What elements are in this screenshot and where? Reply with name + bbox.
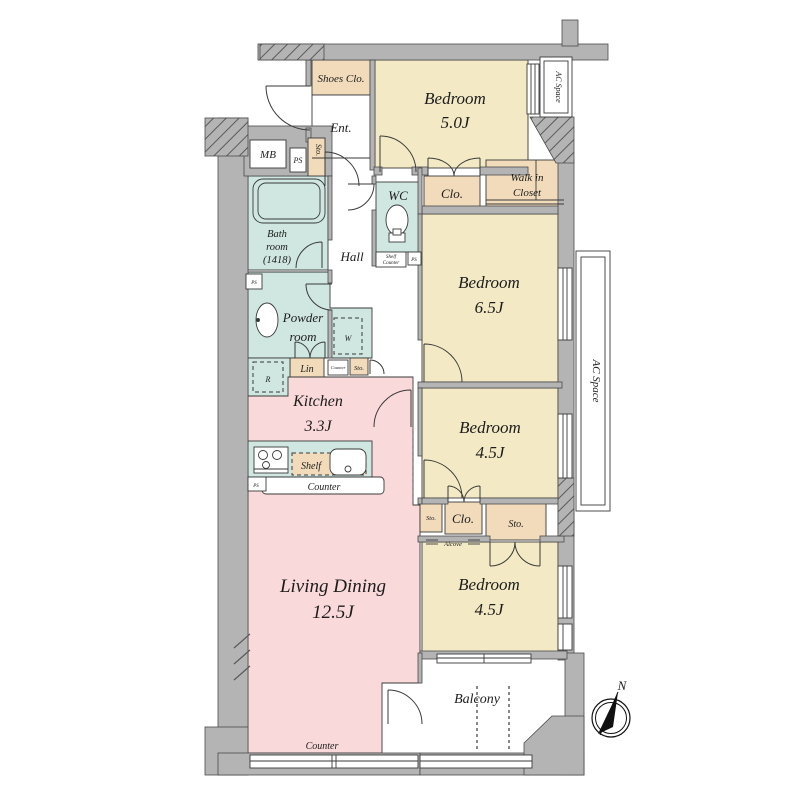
wall-seg: [418, 653, 422, 683]
wall-top-stub: [562, 20, 578, 46]
label-bedroom-65: Bedroom: [458, 273, 520, 292]
label-ac-space-top: AC Space: [554, 70, 563, 103]
label-ps-1: PS: [293, 156, 303, 165]
wall-seg: [418, 498, 422, 504]
label-counter-bottom: Counter: [306, 741, 339, 752]
floor-plan-page: N Shoes Clo. Ent. Bedroom 5.0J AC Space …: [0, 0, 800, 800]
window-living-bottom: [250, 755, 418, 768]
window-bedroom-bottom-b: [558, 624, 572, 650]
label-counter-tiny: Counter: [331, 365, 346, 370]
label-walk-in-1: Walk in: [511, 172, 544, 184]
label-storage-powder: Sto.: [354, 365, 364, 372]
toilet-icon: [386, 205, 408, 242]
label-storage-row-right: Sto.: [508, 519, 523, 530]
label-wc: WC: [388, 188, 408, 203]
label-bedroom-mid-size: 4.5J: [476, 443, 506, 462]
label-kitchen-size: 3.3J: [303, 418, 332, 435]
wall-corridor: [418, 168, 422, 214]
label-bedroom-bottom-size: 4.5J: [475, 600, 505, 619]
label-powder-2: room: [290, 329, 317, 344]
label-shoes-closet: Shoes Clo.: [317, 73, 364, 85]
sink-icon: [256, 303, 278, 337]
label-wc-counter: Counter: [383, 261, 399, 266]
compass-north-label: N: [617, 678, 628, 693]
label-kitchen: Kitchen: [292, 393, 343, 410]
label-meter-box: MB: [259, 149, 276, 161]
wall-seg: [540, 536, 564, 542]
wall-seg: [372, 176, 376, 184]
label-hall: Hall: [339, 249, 364, 264]
label-kitchen-shelf: Shelf: [301, 461, 322, 472]
label-powder-1: Powder: [282, 310, 324, 325]
label-bedroom-top: Bedroom: [424, 89, 486, 108]
label-bath-1: Bath: [267, 229, 287, 240]
balcony-rail: [420, 755, 532, 768]
wall-seg: [374, 167, 382, 175]
hatch-left-top: [205, 118, 248, 156]
label-ps-4: PS: [252, 484, 259, 489]
label-living-dining-size: 12.5J: [312, 602, 355, 623]
window-bedroom-65: [558, 268, 572, 340]
label-bedroom-top-size: 5.0J: [441, 113, 471, 132]
window-bedroom-mid: [558, 414, 572, 478]
label-bedroom-65-size: 6.5J: [475, 298, 505, 317]
label-storage-entrance: Sto.: [314, 144, 323, 156]
label-ps-2: PS: [410, 258, 417, 263]
wall-bedroom65-bottom: [418, 382, 562, 388]
wall-hall-bath: [328, 176, 332, 240]
label-bedroom-bottom: Bedroom: [458, 575, 520, 594]
label-linen: Lin: [299, 364, 313, 375]
label-entrance: Ent.: [329, 120, 351, 135]
label-bath-2: room: [266, 242, 288, 253]
wall-ent-left-a: [306, 60, 311, 86]
wall-seg: [480, 498, 562, 504]
window-bedroom-top: [527, 64, 539, 114]
hatch-top: [260, 44, 324, 60]
window-bedroom-bottom-a: [558, 566, 572, 618]
label-living-dining: Living Dining: [279, 576, 386, 597]
wall-under-closets: [422, 206, 558, 214]
wall-left: [218, 118, 248, 775]
wall-wc-left: [372, 210, 376, 266]
label-bath-3: (1418): [263, 255, 291, 266]
hatch-right-mid: [558, 478, 574, 536]
wall-seg: [422, 498, 448, 504]
wall-ent-bedroom: [370, 60, 375, 170]
wall-corridor: [418, 214, 422, 340]
sliding-door-bedroom-balcony: [437, 654, 531, 663]
label-bedroom-mid: Bedroom: [459, 418, 521, 437]
floor-plan: N Shoes Clo. Ent. Bedroom 5.0J AC Space …: [0, 0, 800, 800]
label-alcove: Alcove: [443, 541, 462, 548]
label-ps-3: PS: [250, 281, 257, 286]
label-walk-in-2: Closet: [513, 187, 542, 199]
wall-corridor: [418, 388, 422, 456]
wall-seg: [328, 310, 332, 358]
label-ac-space-right: AC Space: [590, 358, 602, 402]
label-balcony: Balcony: [454, 692, 501, 707]
label-wc-shelf: Shelf: [386, 255, 397, 260]
kitchen-sink-icon: [330, 449, 366, 475]
stove-icon: [254, 447, 288, 473]
wall-seg: [328, 270, 332, 283]
label-storage-row-left: Sto.: [426, 515, 436, 522]
label-fridge: R: [265, 375, 271, 384]
label-closet-top: Clo.: [441, 186, 463, 201]
label-closet-row: Clo.: [452, 511, 474, 526]
label-kitchen-counter: Counter: [308, 482, 341, 493]
